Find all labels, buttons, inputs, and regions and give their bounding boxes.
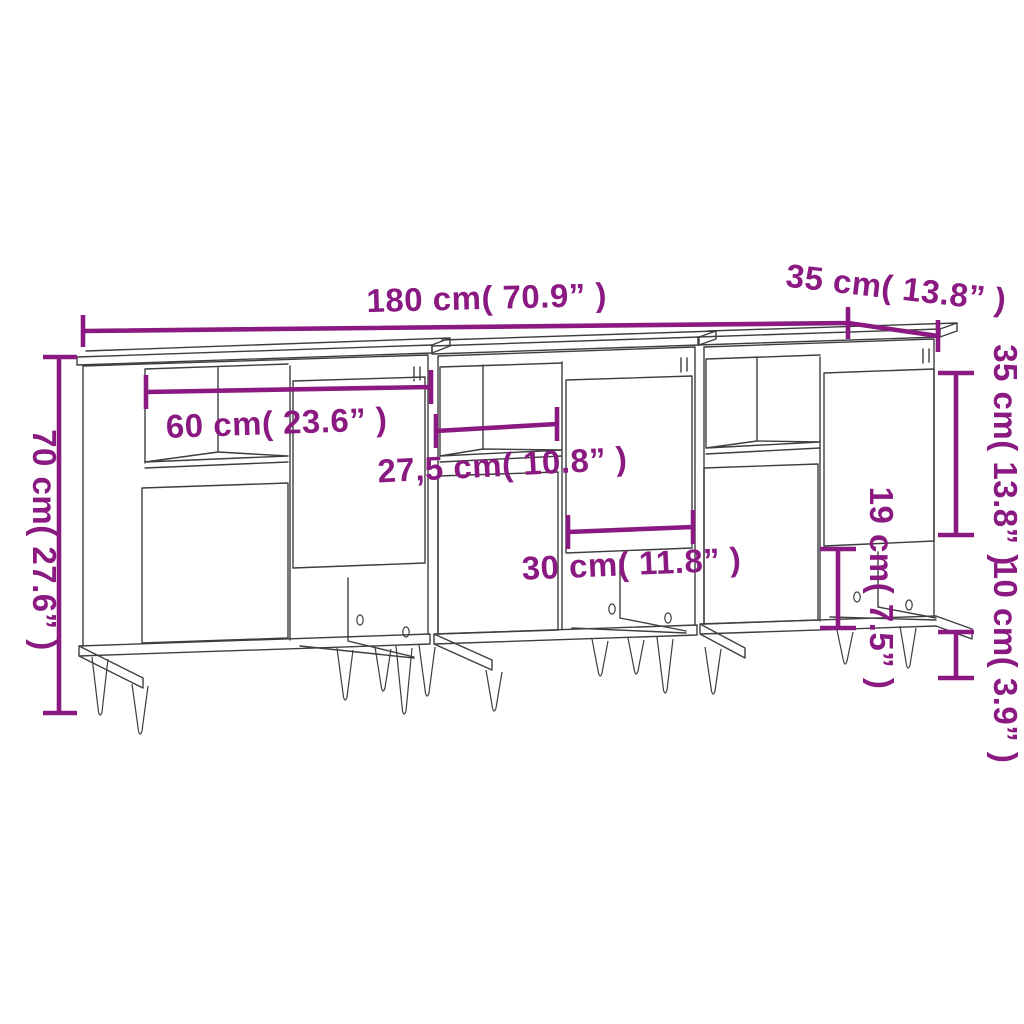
dim-shelf-width-line — [436, 407, 557, 448]
sideboard-line-art — [77, 323, 972, 734]
dim-shelf-width-label: 27,5 cm( 10.8” ) — [377, 439, 629, 489]
unit1-top-slab — [77, 338, 450, 365]
unit1-carcass — [83, 355, 428, 646]
dim-upper-door-height-line — [938, 373, 974, 535]
dim-compartment-height-label: 19 cm( 7.5” ) — [863, 487, 900, 690]
unit2-doors — [438, 358, 692, 634]
dim-width-label: 180 cm( 70.9” ) — [366, 276, 607, 319]
dim-compartment-width-label: 30 cm( 11.8” ) — [521, 540, 742, 587]
dim-depth-label: 35 cm( 13.8” ) — [784, 257, 1008, 319]
dim-leg-height-label: 10 cm( 3.9” ) — [987, 561, 1024, 764]
dim-height-label: 70 cm( 27.6” ) — [26, 429, 63, 651]
dim-inner-width-label: 60 cm( 23.6” ) — [165, 400, 388, 445]
dimension-diagram: 180 cm( 70.9” ) 35 cm( 13.8” ) 70 cm( 27… — [0, 0, 1024, 1024]
dim-upper-door-height-label: 35 cm( 13.8” ) — [987, 344, 1024, 566]
dim-compartment-height-line — [820, 549, 856, 628]
sideboard-dimension-drawing: 180 cm( 70.9” ) 35 cm( 13.8” ) 70 cm( 27… — [0, 0, 1024, 1024]
dim-leg-height-line — [938, 632, 974, 678]
unit3-open-shelf — [706, 355, 820, 454]
dimension-labels: 180 cm( 70.9” ) 35 cm( 13.8” ) 70 cm( 27… — [26, 257, 1024, 764]
